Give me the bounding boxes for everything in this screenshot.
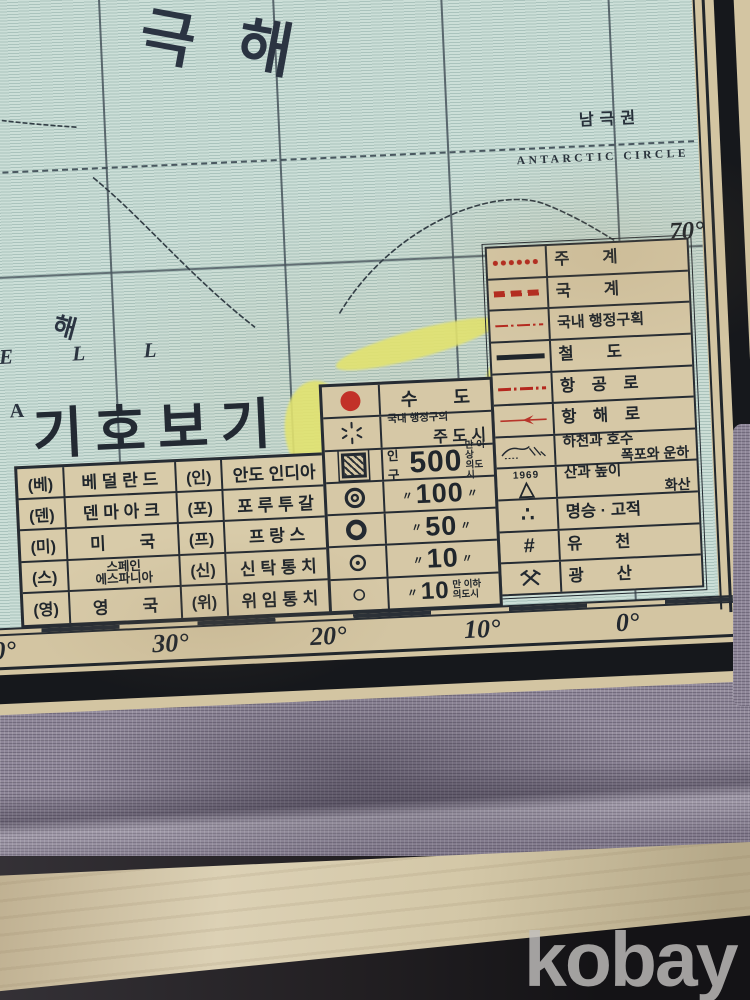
country-cell: 베 덜 란 드 [64,462,177,498]
air-route-symbol [492,372,553,404]
abbr-cell: (베) [17,467,65,500]
country-cell: 포 루 투 갈 [223,486,327,522]
national-boundary-symbol [488,278,549,310]
abbr-cell: (미) [20,529,68,562]
fabric-edge-sliver [733,424,750,706]
abbr-cell: (인) [176,460,223,493]
river-lake-symbol [495,436,556,468]
longitude-10-label: 10° [463,614,501,646]
sea-title-char-geuk: 극 [135,5,200,74]
mine-crossed-hammers-symbol [501,562,562,594]
abbr-cell: (위) [182,585,229,618]
legend-symbols-table: 주 계 국 계 국내 행정구획 철 도 항 공 로 [485,238,705,597]
city-1m-symbol [326,481,385,514]
country-cell: 덴 마 아 크 [66,493,179,529]
sea-route-symbol [494,404,555,436]
city-size-symbol-table: 수 도 국내 행정구의 주 도 시 인구 500 만 이상의도시 [319,377,503,615]
map-sheet: 남 극 해 남극권 ANTARCTIC CIRCLE 해 E L L A 기호보… [0,0,750,717]
country-cell: 신 탁 통 치 [226,549,330,585]
provincial-capital-symbol [323,417,382,450]
country-cell: 미 국 [67,524,180,560]
antarctic-circle-label-korean: 남극권 [578,104,641,131]
longitude-30-label: 30° [152,628,190,660]
longitude-20-label: 20° [309,621,347,653]
abbr-cell: (덴) [19,498,67,531]
country-cell: 영 국 [70,587,183,623]
city-500k-symbol [328,514,387,547]
country-cell: 안도 인디아 [222,455,326,491]
country-cell: 스페인에스파니아 [68,556,181,592]
sea-letter-a: A [9,400,24,424]
longitude-0-label: 0° [615,607,640,638]
abbr-cell: (프) [179,522,226,555]
country-cell: 위 임 통 치 [228,580,332,616]
oil-spring-symbol: # [500,530,561,562]
admin-district-symbol [490,309,551,341]
city-100k-symbol [329,546,388,579]
country-abbreviation-table: (베) 베 덜 란 드 (인) 안도 인디아 (덴) 덴 마 아 크 (포) 포… [14,452,335,628]
country-cell: 프 랑 스 [225,518,329,554]
abbr-cell: (포) [177,491,224,524]
photo-of-wall-map: 남 극 해 남극권 ANTARCTIC CIRCLE 해 E L L A 기호보… [0,0,750,1000]
capital-symbol [322,385,381,418]
sea-title-char-hae: 해 [232,14,297,83]
abbr-cell: (스) [21,561,69,594]
abbr-cell: (영) [23,592,71,625]
historic-site-symbol: ∴ [498,499,559,531]
row-city-under-100k: 〃 10 만 이하의도시 [331,571,500,611]
watermark: kobay [524,916,737,1000]
railway-symbol [491,341,552,373]
city-under-100k-symbol [331,578,390,611]
state-boundary-symbol [487,246,548,278]
city-over-5m-symbol [325,449,384,482]
mountain-volcano-symbol: 1969 △ [497,467,558,499]
longitude-40-label-partial: 0° [0,636,17,667]
abbr-cell: (신) [180,553,227,586]
